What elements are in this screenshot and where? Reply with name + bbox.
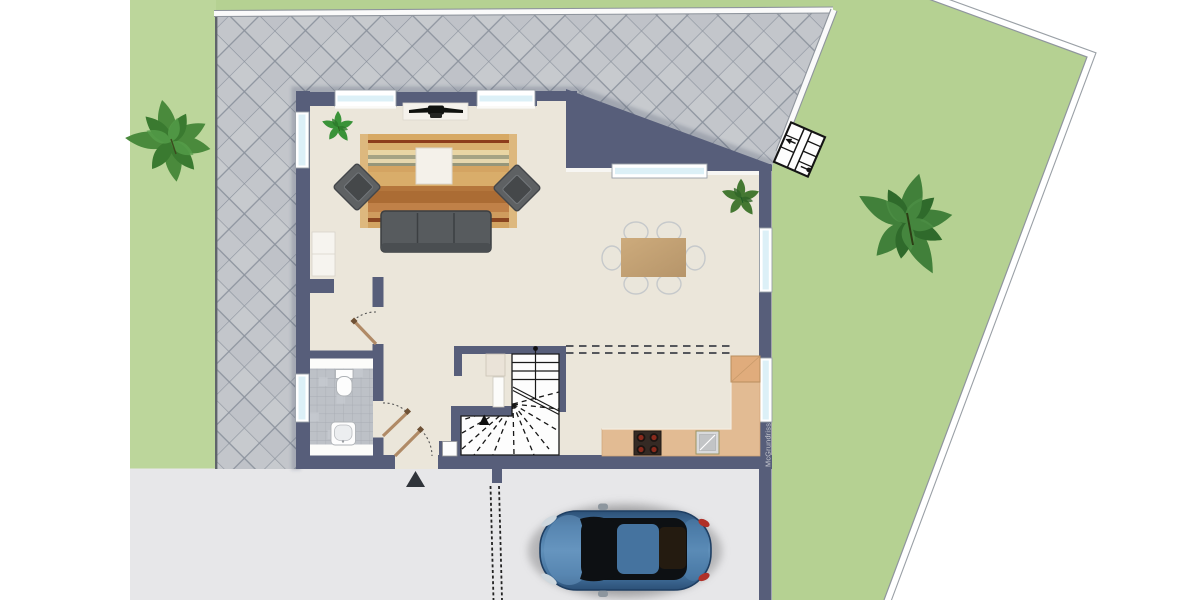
svg-text:McGrundriss: McGrundriss [764,423,773,467]
